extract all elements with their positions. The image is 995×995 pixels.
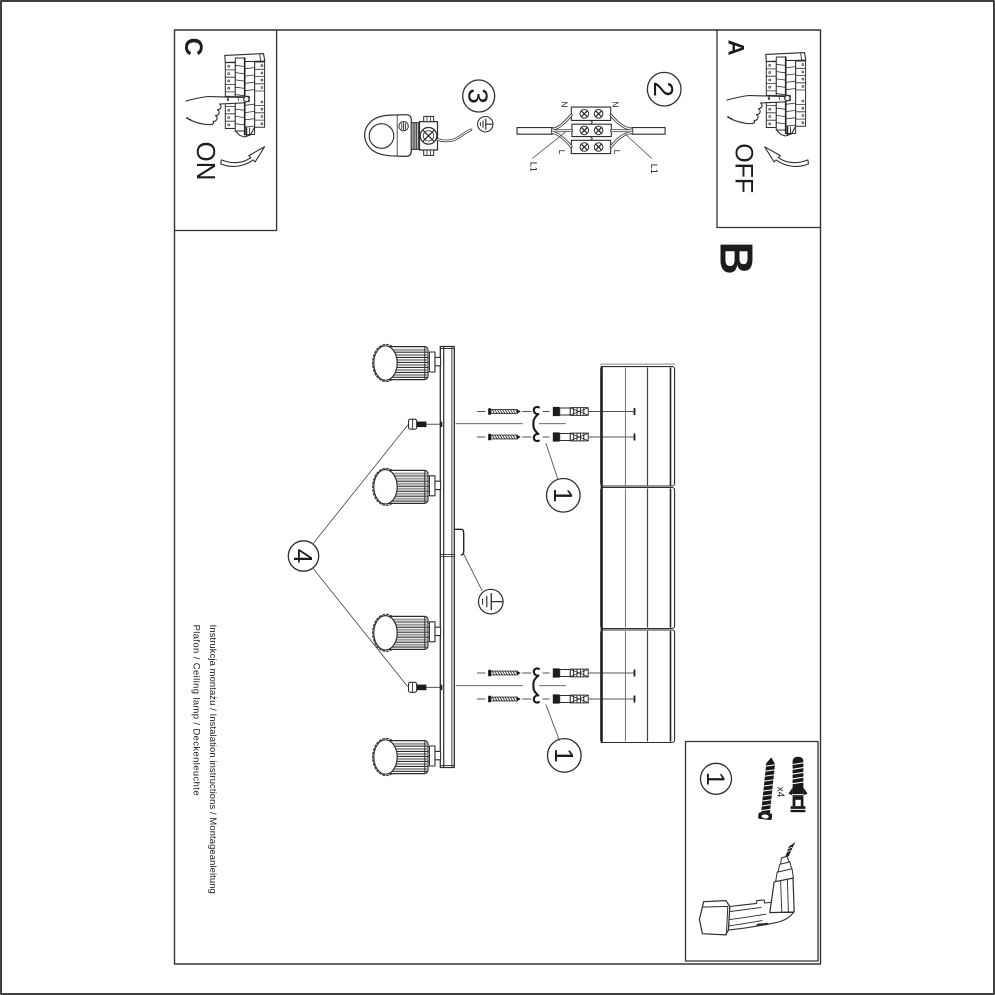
svg-text:N: N bbox=[611, 101, 621, 107]
svg-text:Plafon / Ceiling lamp / Decken: Plafon / Ceiling lamp / Deckenleuchte bbox=[192, 625, 203, 796]
svg-text:3: 3 bbox=[463, 88, 494, 104]
svg-text:4: 4 bbox=[288, 549, 318, 563]
svg-text:2: 2 bbox=[648, 81, 679, 97]
svg-text:1: 1 bbox=[549, 748, 579, 762]
svg-text:1: 1 bbox=[701, 772, 729, 786]
svg-text:L1: L1 bbox=[649, 164, 659, 174]
svg-text:x4: x4 bbox=[775, 787, 786, 798]
svg-text:1: 1 bbox=[548, 488, 578, 502]
svg-text:Instrukcja montażu / Instalati: Instrukcja montażu / Instalation instruc… bbox=[208, 625, 219, 894]
svg-text:B: B bbox=[711, 242, 763, 275]
svg-text:L: L bbox=[557, 150, 567, 155]
svg-text:L: L bbox=[612, 150, 622, 155]
svg-text:C: C bbox=[179, 38, 207, 56]
svg-text:N: N bbox=[559, 101, 569, 107]
svg-text:OFF: OFF bbox=[729, 143, 757, 193]
svg-text:A: A bbox=[724, 40, 749, 56]
svg-text:L1: L1 bbox=[529, 162, 539, 172]
svg-text:ON: ON bbox=[191, 142, 221, 181]
